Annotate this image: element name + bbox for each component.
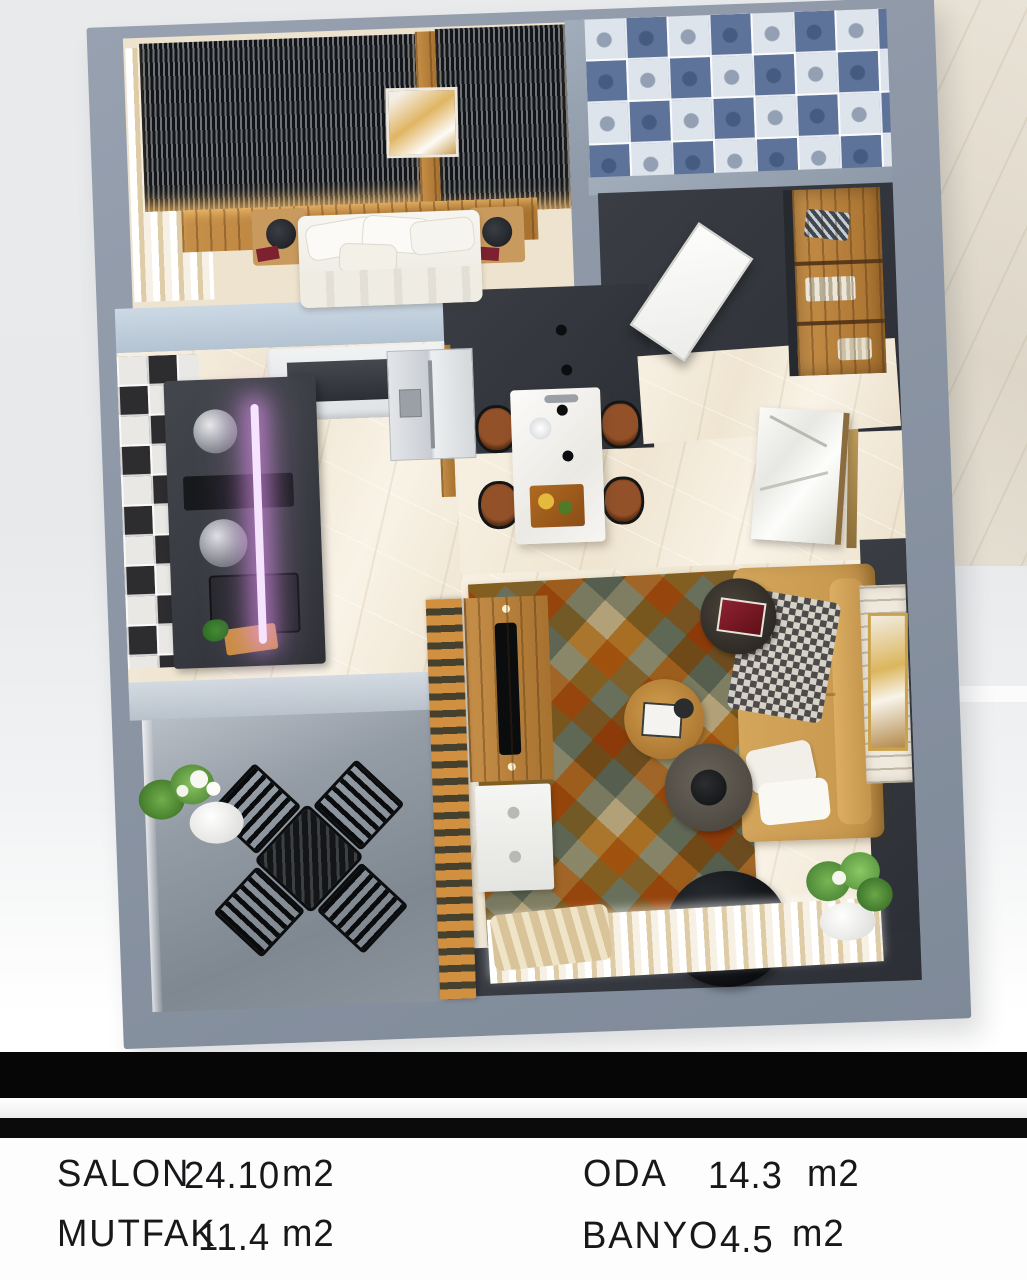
marble-console bbox=[751, 407, 850, 545]
cabinet-knob bbox=[509, 850, 521, 862]
cabinet-knob bbox=[507, 807, 519, 819]
lamp-left bbox=[266, 218, 297, 249]
spot-light bbox=[502, 605, 510, 613]
pot-steel bbox=[193, 409, 239, 455]
plant-pot bbox=[189, 801, 245, 845]
towel-striped bbox=[805, 276, 856, 302]
wardrobe-shelf bbox=[797, 319, 885, 326]
balcony-plant bbox=[131, 758, 254, 856]
legend-room-area: 14.3 bbox=[708, 1154, 783, 1198]
white-brick-panel bbox=[859, 584, 912, 784]
bed bbox=[297, 210, 482, 309]
tv-board bbox=[464, 595, 555, 782]
white-pillow bbox=[757, 777, 831, 826]
living-plant bbox=[781, 851, 905, 955]
food bbox=[558, 500, 573, 515]
legend-room-area: 11.4 bbox=[198, 1216, 270, 1260]
fridge bbox=[386, 348, 476, 461]
fridge-handle bbox=[428, 360, 435, 448]
hall-wardrobe bbox=[783, 187, 887, 376]
lamp-right bbox=[482, 216, 513, 247]
faucet bbox=[544, 394, 578, 403]
divider-bar-thin bbox=[0, 1118, 1027, 1138]
legend-room-unit: m2 bbox=[282, 1152, 335, 1196]
towel-patterned bbox=[804, 209, 851, 241]
floor-plan bbox=[86, 0, 971, 1049]
marble-vein bbox=[760, 471, 829, 491]
tv-cabinet bbox=[474, 783, 554, 892]
floor-plan-scene: SALON 24.10 m2 ODA 14.3 m2 MUTFAK 11.4 m… bbox=[0, 0, 1027, 1280]
foliage bbox=[856, 877, 893, 912]
food bbox=[538, 493, 555, 510]
legend-room-area: 24.10 bbox=[184, 1154, 280, 1198]
cup bbox=[529, 417, 552, 440]
cooktop bbox=[183, 473, 294, 511]
tv-screen bbox=[495, 622, 522, 755]
fridge-dispenser bbox=[399, 389, 422, 418]
legend: SALON 24.10 m2 ODA 14.3 m2 MUTFAK 11.4 m… bbox=[0, 1138, 1027, 1280]
bathroom-tile-floor bbox=[582, 9, 892, 180]
bedroom-artwork bbox=[385, 87, 458, 158]
basket bbox=[837, 337, 872, 360]
legend-room-name: SALON bbox=[57, 1152, 190, 1196]
white-bloom bbox=[206, 781, 221, 796]
divider-bar-thick bbox=[0, 1052, 1027, 1098]
kettle bbox=[690, 769, 727, 806]
legend-room-unit: m2 bbox=[807, 1152, 860, 1196]
red-book bbox=[716, 597, 766, 637]
wall-artwork-gold bbox=[868, 613, 908, 751]
spot-light bbox=[508, 763, 516, 771]
dining-chair bbox=[601, 476, 645, 526]
bowl bbox=[673, 698, 694, 719]
kitchen-counter bbox=[163, 376, 325, 669]
divider-gap bbox=[0, 1098, 1027, 1118]
legend-room-name: BANYO bbox=[582, 1214, 719, 1258]
bedroom-slat-panel-left bbox=[139, 34, 421, 212]
legend-room-name: MUTFAK bbox=[57, 1212, 216, 1256]
wardrobe-shelf bbox=[794, 259, 882, 266]
legend-room-unit: m2 bbox=[282, 1212, 335, 1256]
legend-room-name: ODA bbox=[583, 1152, 668, 1196]
pillow bbox=[409, 216, 476, 257]
pot-steel bbox=[199, 518, 249, 568]
dining-chair bbox=[598, 400, 642, 450]
marble-vein bbox=[769, 415, 827, 448]
legend-room-unit: m2 bbox=[792, 1212, 845, 1256]
legend-room-area: 4.5 bbox=[720, 1218, 774, 1262]
food-tray bbox=[530, 484, 586, 528]
book-red-left bbox=[256, 246, 280, 263]
bed-blanket bbox=[300, 266, 483, 309]
